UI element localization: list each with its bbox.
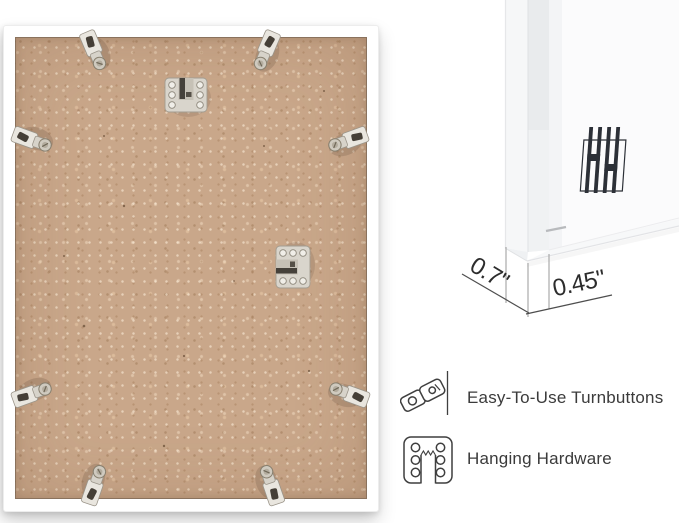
turnbutton-clip — [79, 27, 115, 73]
feature-icons — [400, 360, 679, 523]
keyhole-hanger-landscape — [276, 242, 315, 288]
turnbutton-clip — [10, 120, 56, 155]
turnbutton-icon — [400, 371, 448, 415]
hanging-hardware-icon — [404, 437, 452, 485]
product-infographic: 0.7" 0.45" — [0, 0, 679, 523]
keyhole-hanger-portrait — [165, 78, 211, 117]
turnbutton-clip — [251, 463, 285, 509]
frame-back-panel — [3, 25, 379, 512]
turnbutton-clip — [326, 126, 372, 161]
turnbutton-clip — [8, 374, 54, 409]
turnbutton-clip — [250, 29, 286, 75]
frame-side-face — [505, 0, 528, 252]
feature-legend: Easy-To-Use Turnbuttons Hanging Hardware — [400, 360, 679, 523]
corner-profile-view — [400, 0, 679, 345]
feature-label-hanging-hardware: Hanging Hardware — [467, 449, 612, 469]
frame-front-area — [549, 0, 679, 250]
turnbutton-clip — [75, 461, 109, 507]
feature-label-turnbuttons: Easy-To-Use Turnbuttons — [467, 388, 663, 408]
hardware-layer — [4, 26, 378, 511]
turnbutton-clip — [325, 379, 371, 414]
